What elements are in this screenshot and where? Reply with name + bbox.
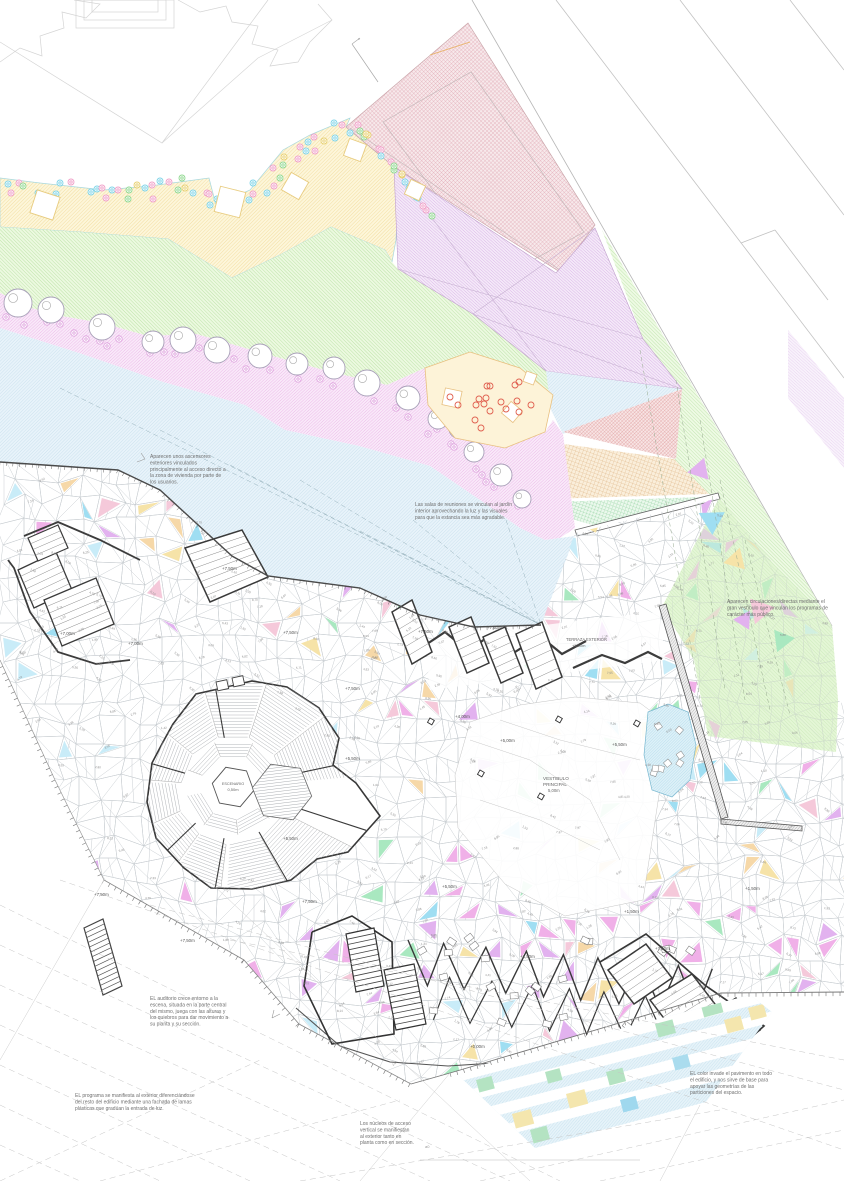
svg-text:8,66: 8,66 <box>379 1000 386 1005</box>
svg-text:7,34: 7,34 <box>662 807 668 811</box>
svg-text:4,79: 4,79 <box>145 896 151 900</box>
svg-text:+1,50m: +1,50m <box>520 954 535 959</box>
svg-text:Las salas de reuniones se vinc: Las salas de reuniones se vinculan al ja… <box>415 502 512 521</box>
svg-text:5,71: 5,71 <box>696 629 702 633</box>
svg-text:8,70: 8,70 <box>252 598 258 602</box>
svg-text:7,97: 7,97 <box>575 825 582 830</box>
svg-text:2,80: 2,80 <box>324 733 331 738</box>
svg-text:4,32: 4,32 <box>395 965 401 969</box>
svg-text:+5,00m: +5,00m <box>500 738 515 743</box>
svg-text:7,65: 7,65 <box>610 780 616 784</box>
svg-text:4,21: 4,21 <box>677 693 684 698</box>
svg-text:7,37: 7,37 <box>556 830 562 834</box>
svg-text:2,12: 2,12 <box>387 982 393 986</box>
svg-text:0,50m: 0,50m <box>227 787 239 792</box>
svg-text:7,42: 7,42 <box>248 878 255 883</box>
svg-text:a0: a0 <box>425 1144 430 1149</box>
svg-text:1,17: 1,17 <box>453 1037 460 1042</box>
svg-text:7,33: 7,33 <box>158 661 164 666</box>
svg-text:8,54: 8,54 <box>746 692 752 696</box>
svg-text:6,20: 6,20 <box>497 689 504 694</box>
svg-text:6,43: 6,43 <box>222 621 228 626</box>
svg-text:1,38: 1,38 <box>645 763 651 767</box>
svg-text:1,42: 1,42 <box>161 726 167 730</box>
svg-text:2,88: 2,88 <box>513 846 519 850</box>
svg-text:7,63: 7,63 <box>629 668 636 673</box>
svg-text:+5,50m: +5,50m <box>612 742 627 747</box>
svg-text:5,88: 5,88 <box>780 633 786 637</box>
svg-text:1,89: 1,89 <box>223 938 229 942</box>
svg-text:4,62: 4,62 <box>260 909 266 913</box>
svg-text:4,20: 4,20 <box>624 795 630 799</box>
svg-text:7,17: 7,17 <box>720 980 726 984</box>
svg-text:3,06: 3,06 <box>792 730 798 735</box>
svg-text:5,00m: 5,00m <box>548 788 560 793</box>
svg-text:+7,50m: +7,50m <box>418 629 433 634</box>
svg-text:+0,00m: +0,00m <box>470 1044 485 1049</box>
svg-text:6,79: 6,79 <box>196 520 203 525</box>
svg-text:ESCENARIO: ESCENARIO <box>222 782 244 786</box>
svg-text:+5,50m: +5,50m <box>283 836 298 841</box>
svg-text:6,74: 6,74 <box>697 704 703 708</box>
svg-text:5,03: 5,03 <box>303 981 309 985</box>
svg-text:6,75: 6,75 <box>548 678 554 682</box>
svg-text:6,59: 6,59 <box>767 660 774 665</box>
svg-text:5,90: 5,90 <box>72 665 79 670</box>
svg-text:7,05: 7,05 <box>742 720 748 724</box>
svg-text:6,65: 6,65 <box>431 933 437 937</box>
svg-text:2,44: 2,44 <box>407 861 413 865</box>
svg-text:1,95: 1,95 <box>92 637 98 642</box>
svg-text:8,04: 8,04 <box>363 634 369 638</box>
svg-text:8,62: 8,62 <box>672 799 678 803</box>
svg-text:+7,50m: +7,50m <box>487 625 502 630</box>
svg-text:+7,50m: +7,50m <box>222 566 237 571</box>
svg-text:1,34: 1,34 <box>421 942 427 946</box>
svg-text:TERRAZA EXTERIOR: TERRAZA EXTERIOR <box>566 637 607 642</box>
svg-text:5,17: 5,17 <box>758 972 764 976</box>
svg-text:6,95: 6,95 <box>654 722 660 726</box>
svg-text:4,29: 4,29 <box>58 763 64 767</box>
svg-text:1,10: 1,10 <box>761 768 768 773</box>
svg-text:+7,00m: +7,00m <box>128 641 143 646</box>
svg-text:7,39: 7,39 <box>757 664 764 669</box>
svg-text:7,06: 7,06 <box>674 822 680 826</box>
svg-text:5,54: 5,54 <box>598 595 604 599</box>
svg-text:PRINCIPAL: PRINCIPAL <box>543 782 567 787</box>
svg-text:+7,50m: +7,50m <box>283 630 298 635</box>
svg-text:5,85: 5,85 <box>660 584 666 588</box>
svg-text:6,29: 6,29 <box>20 650 27 655</box>
svg-text:+7,00m: +7,00m <box>60 631 75 636</box>
svg-text:7,71: 7,71 <box>589 680 595 684</box>
svg-text:8,14: 8,14 <box>337 1009 343 1013</box>
svg-text:+7,50m: +7,50m <box>180 938 195 943</box>
svg-text:8,23: 8,23 <box>107 836 113 841</box>
svg-text:VESTIBULO: VESTIBULO <box>543 776 569 781</box>
svg-text:2,80: 2,80 <box>95 765 101 769</box>
svg-text:4,41: 4,41 <box>485 973 491 977</box>
svg-text:+7,50m: +7,50m <box>302 899 317 904</box>
svg-text:+4,00m: +4,00m <box>455 714 470 719</box>
svg-text:+7,50m: +7,50m <box>94 892 109 897</box>
svg-text:+1,50m: +1,50m <box>745 886 760 891</box>
svg-text:4,53: 4,53 <box>363 667 370 672</box>
svg-text:1,04: 1,04 <box>373 783 379 787</box>
svg-text:+5,50m: +5,50m <box>345 756 360 761</box>
svg-text:8,52: 8,52 <box>652 895 659 900</box>
svg-text:3,69: 3,69 <box>208 643 214 647</box>
svg-text:4,70: 4,70 <box>436 618 442 622</box>
svg-text:2,33: 2,33 <box>150 876 156 880</box>
svg-text:7,55: 7,55 <box>607 671 613 675</box>
svg-text:v: v <box>358 36 360 41</box>
svg-text:1,93: 1,93 <box>824 906 830 911</box>
svg-text:4,89: 4,89 <box>822 621 829 626</box>
svg-text:+5,50m: +5,50m <box>572 643 586 648</box>
svg-text:+7,50m: +7,50m <box>655 946 670 951</box>
svg-text:+1,50m: +1,50m <box>624 909 639 914</box>
svg-text:3,17: 3,17 <box>600 995 606 999</box>
svg-text:+7,50m: +7,50m <box>345 686 360 691</box>
svg-text:+5,50m: +5,50m <box>442 884 457 889</box>
svg-text:7,69: 7,69 <box>372 629 378 633</box>
svg-text:3,41: 3,41 <box>386 964 392 968</box>
svg-text:5,71: 5,71 <box>296 665 302 670</box>
